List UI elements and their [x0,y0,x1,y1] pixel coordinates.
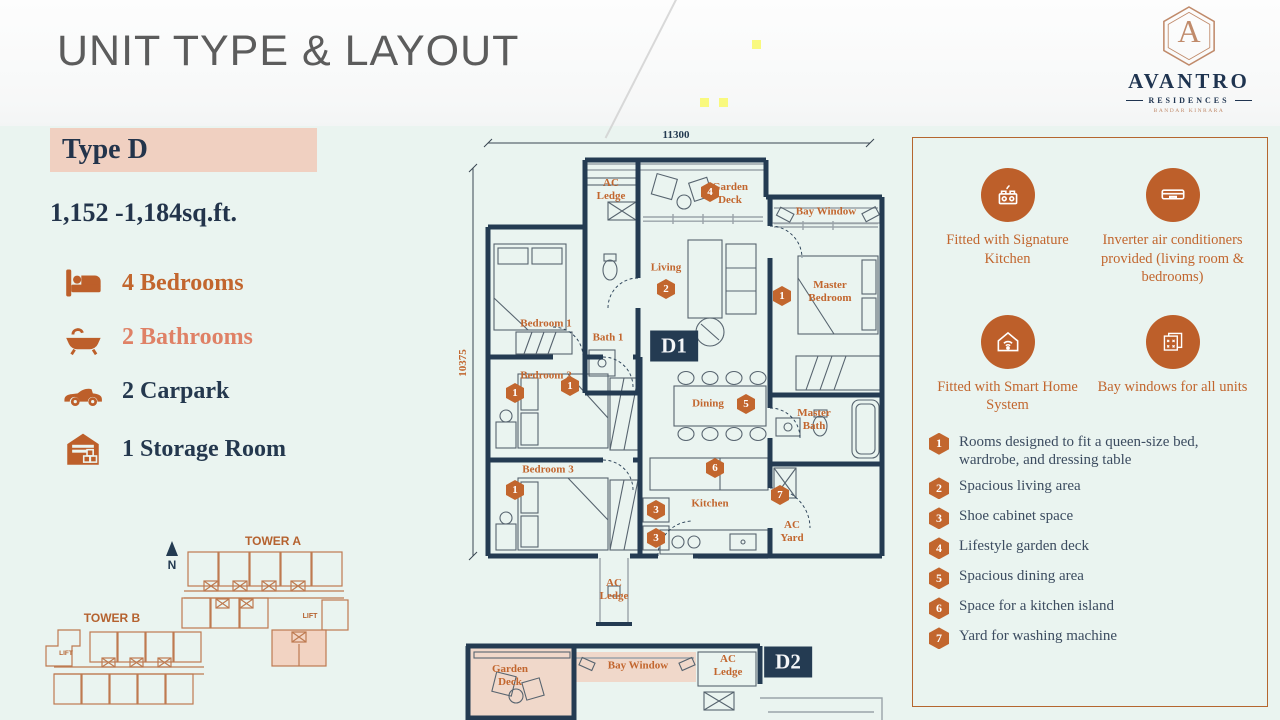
room-label-bedroom-3: Bedroom 3 [522,464,573,477]
legend-badge: 7 [929,627,949,649]
legend-item: 7 Yard for washing machine [929,627,1251,649]
room-label-garden-deck-d2: Garden Deck [492,663,528,689]
room-label-dining: Dining [692,398,724,411]
room-label-ac-ledge-top: AC Ledge [597,177,626,203]
legend-badge: 6 [929,597,949,619]
spec-bathrooms: 2 Bathrooms [62,316,253,358]
spec-storage: 1 Storage Room [62,428,286,470]
kitchen-icon [981,168,1035,222]
room-label-master-bedroom: Master Bedroom [808,279,851,305]
north-arrow-icon [166,541,178,556]
room-label-ac-yard: AC Yard [780,519,803,545]
feature-bay-window: Bay windows for all units [1094,315,1251,415]
spec-storage-label: 1 Storage Room [122,436,286,463]
spec-carpark-label: 2 Carpark [122,378,229,405]
feature-smart-home-text: Fitted with Smart Home System [929,378,1086,415]
room-label-bay-window-d2: Bay Window [608,660,668,673]
logo-subtitle: RESIDENCES [1126,96,1252,105]
decorative-sketch-line [605,0,682,138]
plan-label-d2: D2 [764,647,812,678]
legend-text: Spacious living area [959,477,1081,495]
legend-text: Spacious dining area [959,567,1084,585]
room-label-kitchen: Kitchen [691,498,728,511]
slide: UNIT TYPE & LAYOUT A AVANTRO RESIDENCES … [0,0,1280,720]
legend-item: 2 Spacious living area [929,477,1251,499]
feature-bay-window-text: Bay windows for all units [1094,378,1251,397]
legend-badge: 3 [929,507,949,529]
decorative-square [719,98,728,107]
tower-key-plan: N TOWER A TOWER B LIFT LIFT [28,532,378,707]
legend-item: 3 Shoe cabinet space [929,507,1251,529]
features-panel: Fitted with Signature Kitchen Inverter a… [912,137,1268,707]
room-label-ac-ledge-d2: AC Ledge [714,653,743,679]
unit-type-label: Type D [62,134,148,166]
tower-a-label: TOWER A [245,534,301,548]
legend-item: 6 Space for a kitchen island [929,597,1251,619]
legend-badge: 4 [929,537,949,559]
room-label-ac-ledge-bottom: AC Ledge [600,577,629,603]
header-band: UNIT TYPE & LAYOUT A AVANTRO RESIDENCES … [0,0,1280,126]
car-icon [62,370,104,412]
tower-a-lift-label: LIFT [303,613,318,620]
legend-badge: 2 [929,477,949,499]
legend-text: Shoe cabinet space [959,507,1073,525]
legend-badge: 1 [929,433,949,455]
room-label-bedroom-1: Bedroom 1 [520,318,571,331]
spec-bathrooms-label: 2 Bathrooms [122,324,253,351]
room-label-living: Living [651,262,682,275]
storage-room-icon [62,428,104,470]
page-title: UNIT TYPE & LAYOUT [57,27,519,76]
room-label-bay-window: Bay Window [796,206,856,219]
logo-monogram: A [1160,13,1218,50]
brand-logo: A AVANTRO RESIDENCES BANDAR KINRARA [1126,5,1252,114]
air-conditioner-icon [1146,168,1200,222]
tower-b-lift-label: LIFT [59,650,73,657]
feature-aircond: Inverter air conditioners provided (livi… [1094,168,1251,287]
spec-carpark: 2 Carpark [62,370,229,412]
legend-item: 5 Spacious dining area [929,567,1251,589]
unit-type-banner: Type D [50,128,317,172]
dimension-height: 10375 [457,349,469,377]
legend-text: Lifestyle garden deck [959,537,1089,555]
spec-bedrooms: 4 Bedrooms [62,262,244,304]
legend-text: Yard for washing machine [959,627,1117,645]
legend-item: 4 Lifestyle garden deck [929,537,1251,559]
room-label-bath-1: Bath 1 [593,332,624,345]
room-label-master-bath: Master Bath [797,407,831,433]
legend-badge: 5 [929,567,949,589]
legend-text: Space for a kitchen island [959,597,1114,615]
plan-legend: 1 Rooms designed to fit a queen-size bed… [929,433,1251,650]
bathtub-icon [62,316,104,358]
tower-b-label: TOWER B [84,611,141,625]
floor-plan: 11300 10375 AC Ledge Garden Deck Bay Win… [458,128,910,720]
logo-name: AVANTRO [1126,69,1252,94]
dimension-width: 11300 [663,129,690,141]
logo-tagline: BANDAR KINRARA [1126,108,1252,114]
decorative-square [752,40,761,49]
feature-kitchen: Fitted with Signature Kitchen [929,168,1086,287]
feature-kitchen-text: Fitted with Signature Kitchen [929,231,1086,268]
spec-bedrooms-label: 4 Bedrooms [122,270,244,297]
feature-smart-home: Fitted with Smart Home System [929,315,1086,415]
bay-window-icon [1146,315,1200,369]
north-label: N [168,558,177,572]
legend-text: Rooms designed to fit a queen-size bed, … [959,433,1251,470]
unit-area: 1,152 -1,184sq.ft. [50,198,237,228]
legend-item: 1 Rooms designed to fit a queen-size bed… [929,433,1251,470]
smart-home-icon [981,315,1035,369]
bed-icon [62,262,104,304]
decorative-square [700,98,709,107]
feature-aircond-text: Inverter air conditioners provided (livi… [1094,231,1251,287]
plan-label-d1: D1 [650,331,698,362]
